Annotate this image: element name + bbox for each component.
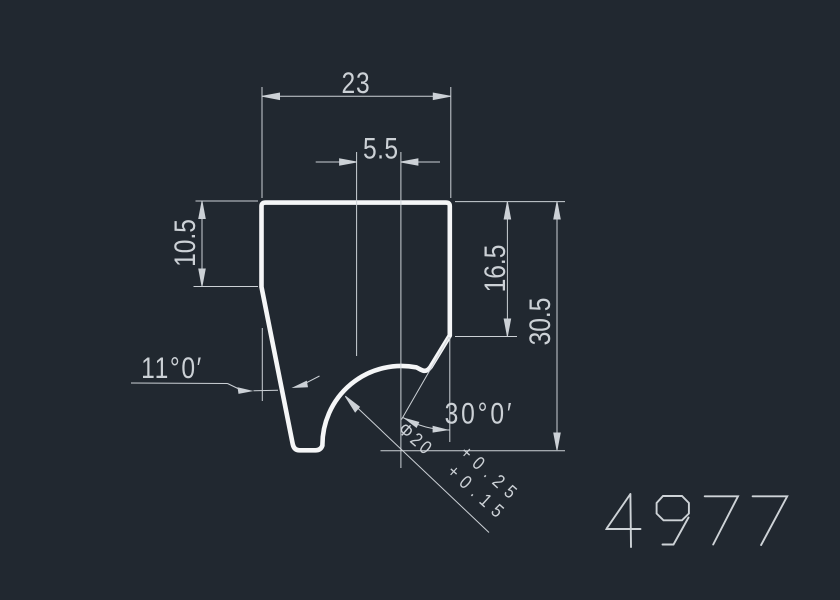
svg-text:10.5: 10.5 (168, 219, 202, 267)
svg-text:5.5: 5.5 (363, 131, 398, 165)
svg-text:16.5: 16.5 (478, 245, 512, 293)
svg-text:11°0′: 11°0′ (141, 351, 203, 385)
svg-text:23: 23 (341, 66, 370, 100)
svg-text:30.5: 30.5 (523, 298, 557, 346)
svg-text:30°0′: 30°0′ (445, 396, 515, 430)
